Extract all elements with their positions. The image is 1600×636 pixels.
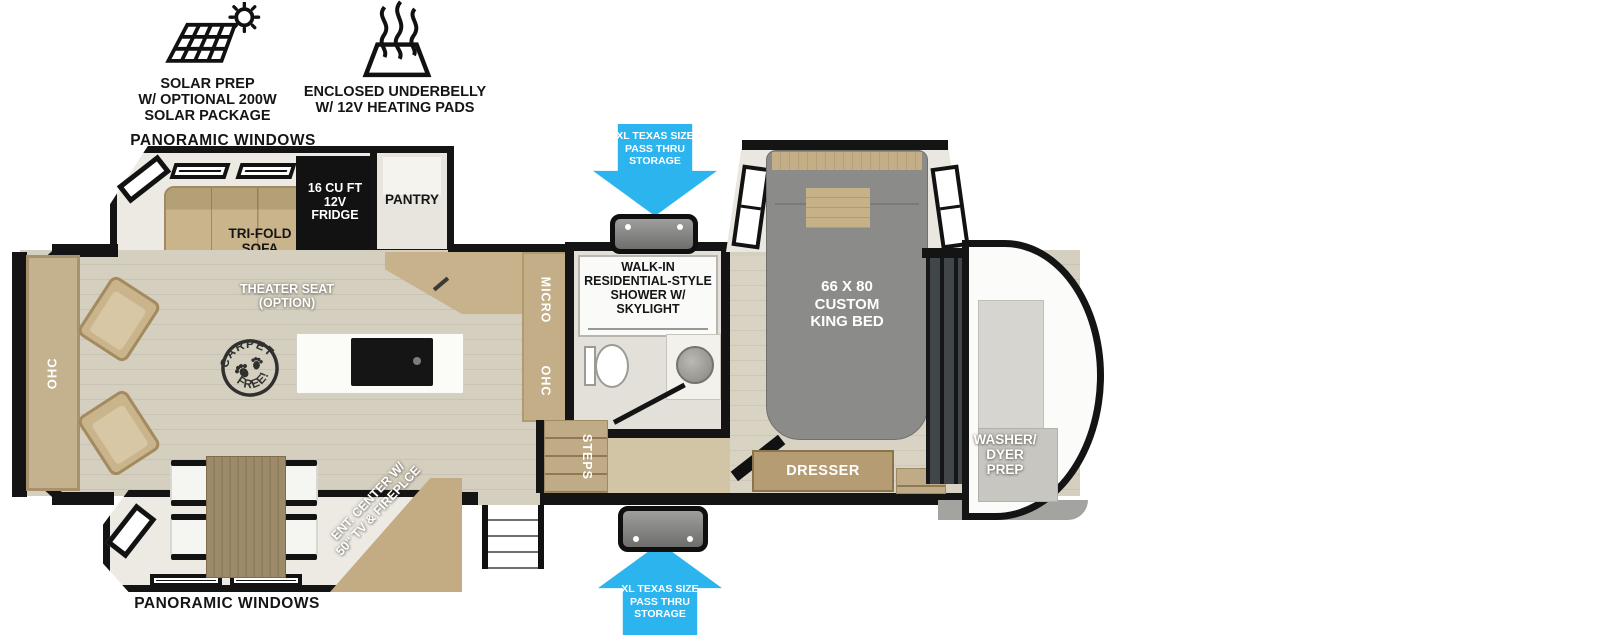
pantry-label: PANTRY bbox=[372, 192, 452, 207]
pass-thru-door-top bbox=[610, 214, 698, 254]
dinette-table bbox=[206, 456, 286, 578]
washer-closet-upper bbox=[978, 300, 1044, 430]
kitchen-ohc-label: OHC bbox=[538, 366, 552, 397]
bottom-wall-1 bbox=[52, 492, 114, 505]
island-faucet bbox=[413, 357, 421, 365]
enclosed-underbelly-icon bbox=[350, 0, 444, 82]
sofa-window-1 bbox=[169, 163, 230, 179]
king-bed-label: 66 X 80 CUSTOM KING BED bbox=[776, 278, 918, 331]
bedroom-landing bbox=[608, 438, 732, 493]
rear-ohc-cabinet: OHC bbox=[26, 255, 80, 491]
dinette-chair-2 bbox=[170, 516, 208, 558]
fridge-label: 16 CU FT 12V FRIDGE bbox=[308, 182, 362, 223]
bed-headboard bbox=[772, 152, 922, 170]
theater-seat-label: THEATER SEAT (OPTION) bbox=[222, 282, 352, 310]
steps-label-wrap: STEPS bbox=[566, 420, 608, 493]
washer-dryer-label: WASHER/ DYER PREP bbox=[962, 432, 1048, 477]
pass-thru-top-label: XL TEXAS SIZE PASS THRU STORAGE bbox=[593, 130, 717, 168]
entry-steps bbox=[482, 505, 544, 569]
panoramic-windows-bottom-label: PANORAMIC WINDOWS bbox=[112, 595, 342, 612]
dresser: DRESSER bbox=[752, 450, 894, 492]
pass-thru-bottom-label: XL TEXAS SIZE PASS THRU STORAGE bbox=[598, 583, 722, 621]
dresser-label: DRESSER bbox=[786, 463, 860, 479]
floorplan-canvas: SOLAR PREP W/ OPTIONAL 200W SOLAR PACKAG… bbox=[0, 0, 1600, 636]
bed-blanket bbox=[806, 188, 870, 228]
refrigerator: 16 CU FT 12V FRIDGE bbox=[296, 156, 374, 254]
toilet bbox=[584, 342, 632, 390]
enclosed-underbelly-label: ENCLOSED UNDERBELLY W/ 12V HEATING PADS bbox=[295, 84, 495, 116]
sofa-window-2 bbox=[235, 163, 296, 179]
solar-prep-label: SOLAR PREP W/ OPTIONAL 200W SOLAR PACKAG… bbox=[105, 76, 310, 125]
pass-thru-door-bottom bbox=[618, 506, 708, 552]
entry-door-opening bbox=[478, 492, 540, 505]
bed-slideout-wall bbox=[742, 140, 948, 150]
solar-panel-icon bbox=[158, 2, 268, 78]
steps-wall bbox=[536, 420, 544, 493]
pantry-shelf bbox=[383, 157, 441, 195]
vanity-sink bbox=[676, 346, 714, 384]
shower-door bbox=[588, 328, 708, 330]
steps-label: STEPS bbox=[580, 434, 594, 480]
micro-label-wrap: MICRO bbox=[522, 258, 568, 342]
rear-ohc-label: OHC bbox=[46, 357, 61, 389]
kitchen-ohc-label-wrap: OHC bbox=[522, 348, 568, 414]
dinette-chair-1 bbox=[170, 462, 208, 504]
micro-label: MICRO bbox=[538, 277, 552, 324]
shower-label: WALK-IN RESIDENTIAL-STYLE SHOWER W/ SKYL… bbox=[572, 260, 724, 316]
